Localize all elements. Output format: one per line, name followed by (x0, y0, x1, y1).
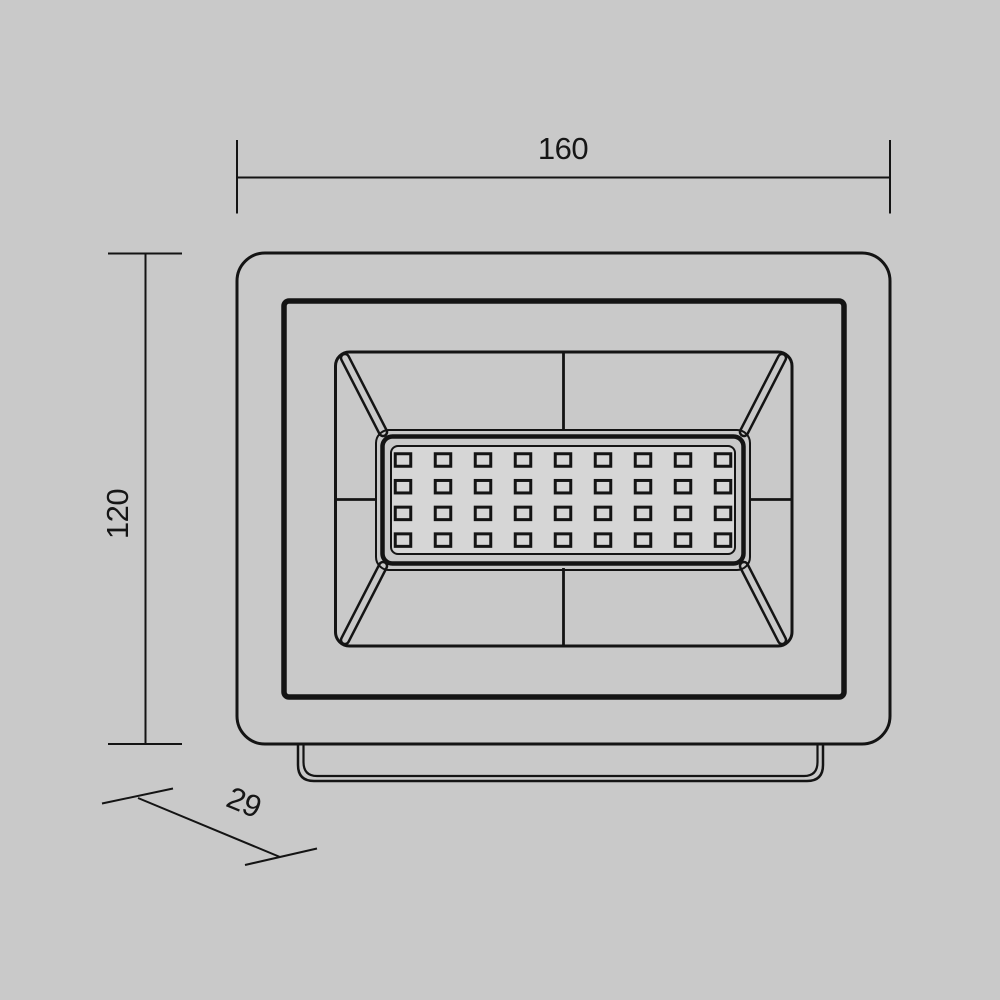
led-cell (435, 454, 451, 467)
led-cell (715, 454, 731, 467)
led-cell (395, 480, 411, 493)
led-cell (715, 507, 731, 520)
led-cell (475, 480, 491, 493)
led-cell (555, 507, 571, 520)
led-panel (376, 430, 750, 570)
led-cell (675, 454, 691, 467)
led-cell (595, 454, 611, 467)
led-cell (715, 534, 731, 547)
led-cell (635, 534, 651, 547)
led-cell (675, 507, 691, 520)
led-cell (595, 534, 611, 547)
led-cell (555, 454, 571, 467)
led-cell (395, 507, 411, 520)
led-cell (475, 534, 491, 547)
led-cell (555, 480, 571, 493)
led-cell (515, 454, 531, 467)
led-cell (595, 507, 611, 520)
led-cell (715, 480, 731, 493)
led-cell (555, 534, 571, 547)
dim-width-label: 160 (538, 131, 588, 166)
led-cell (595, 480, 611, 493)
led-cell (435, 480, 451, 493)
led-cell (635, 480, 651, 493)
led-cell (675, 534, 691, 547)
led-cell (675, 480, 691, 493)
led-cell (395, 534, 411, 547)
led-cell (515, 534, 531, 547)
floodlight-dimension-drawing: 160 120 29 (0, 0, 1000, 1000)
led-cell (475, 454, 491, 467)
led-cell (435, 534, 451, 547)
led-cell (395, 454, 411, 467)
led-cell (435, 507, 451, 520)
led-cell (515, 480, 531, 493)
led-cell (635, 507, 651, 520)
led-cell (475, 507, 491, 520)
led-cell (515, 507, 531, 520)
led-cell (635, 454, 651, 467)
dim-height-label: 120 (100, 489, 135, 539)
